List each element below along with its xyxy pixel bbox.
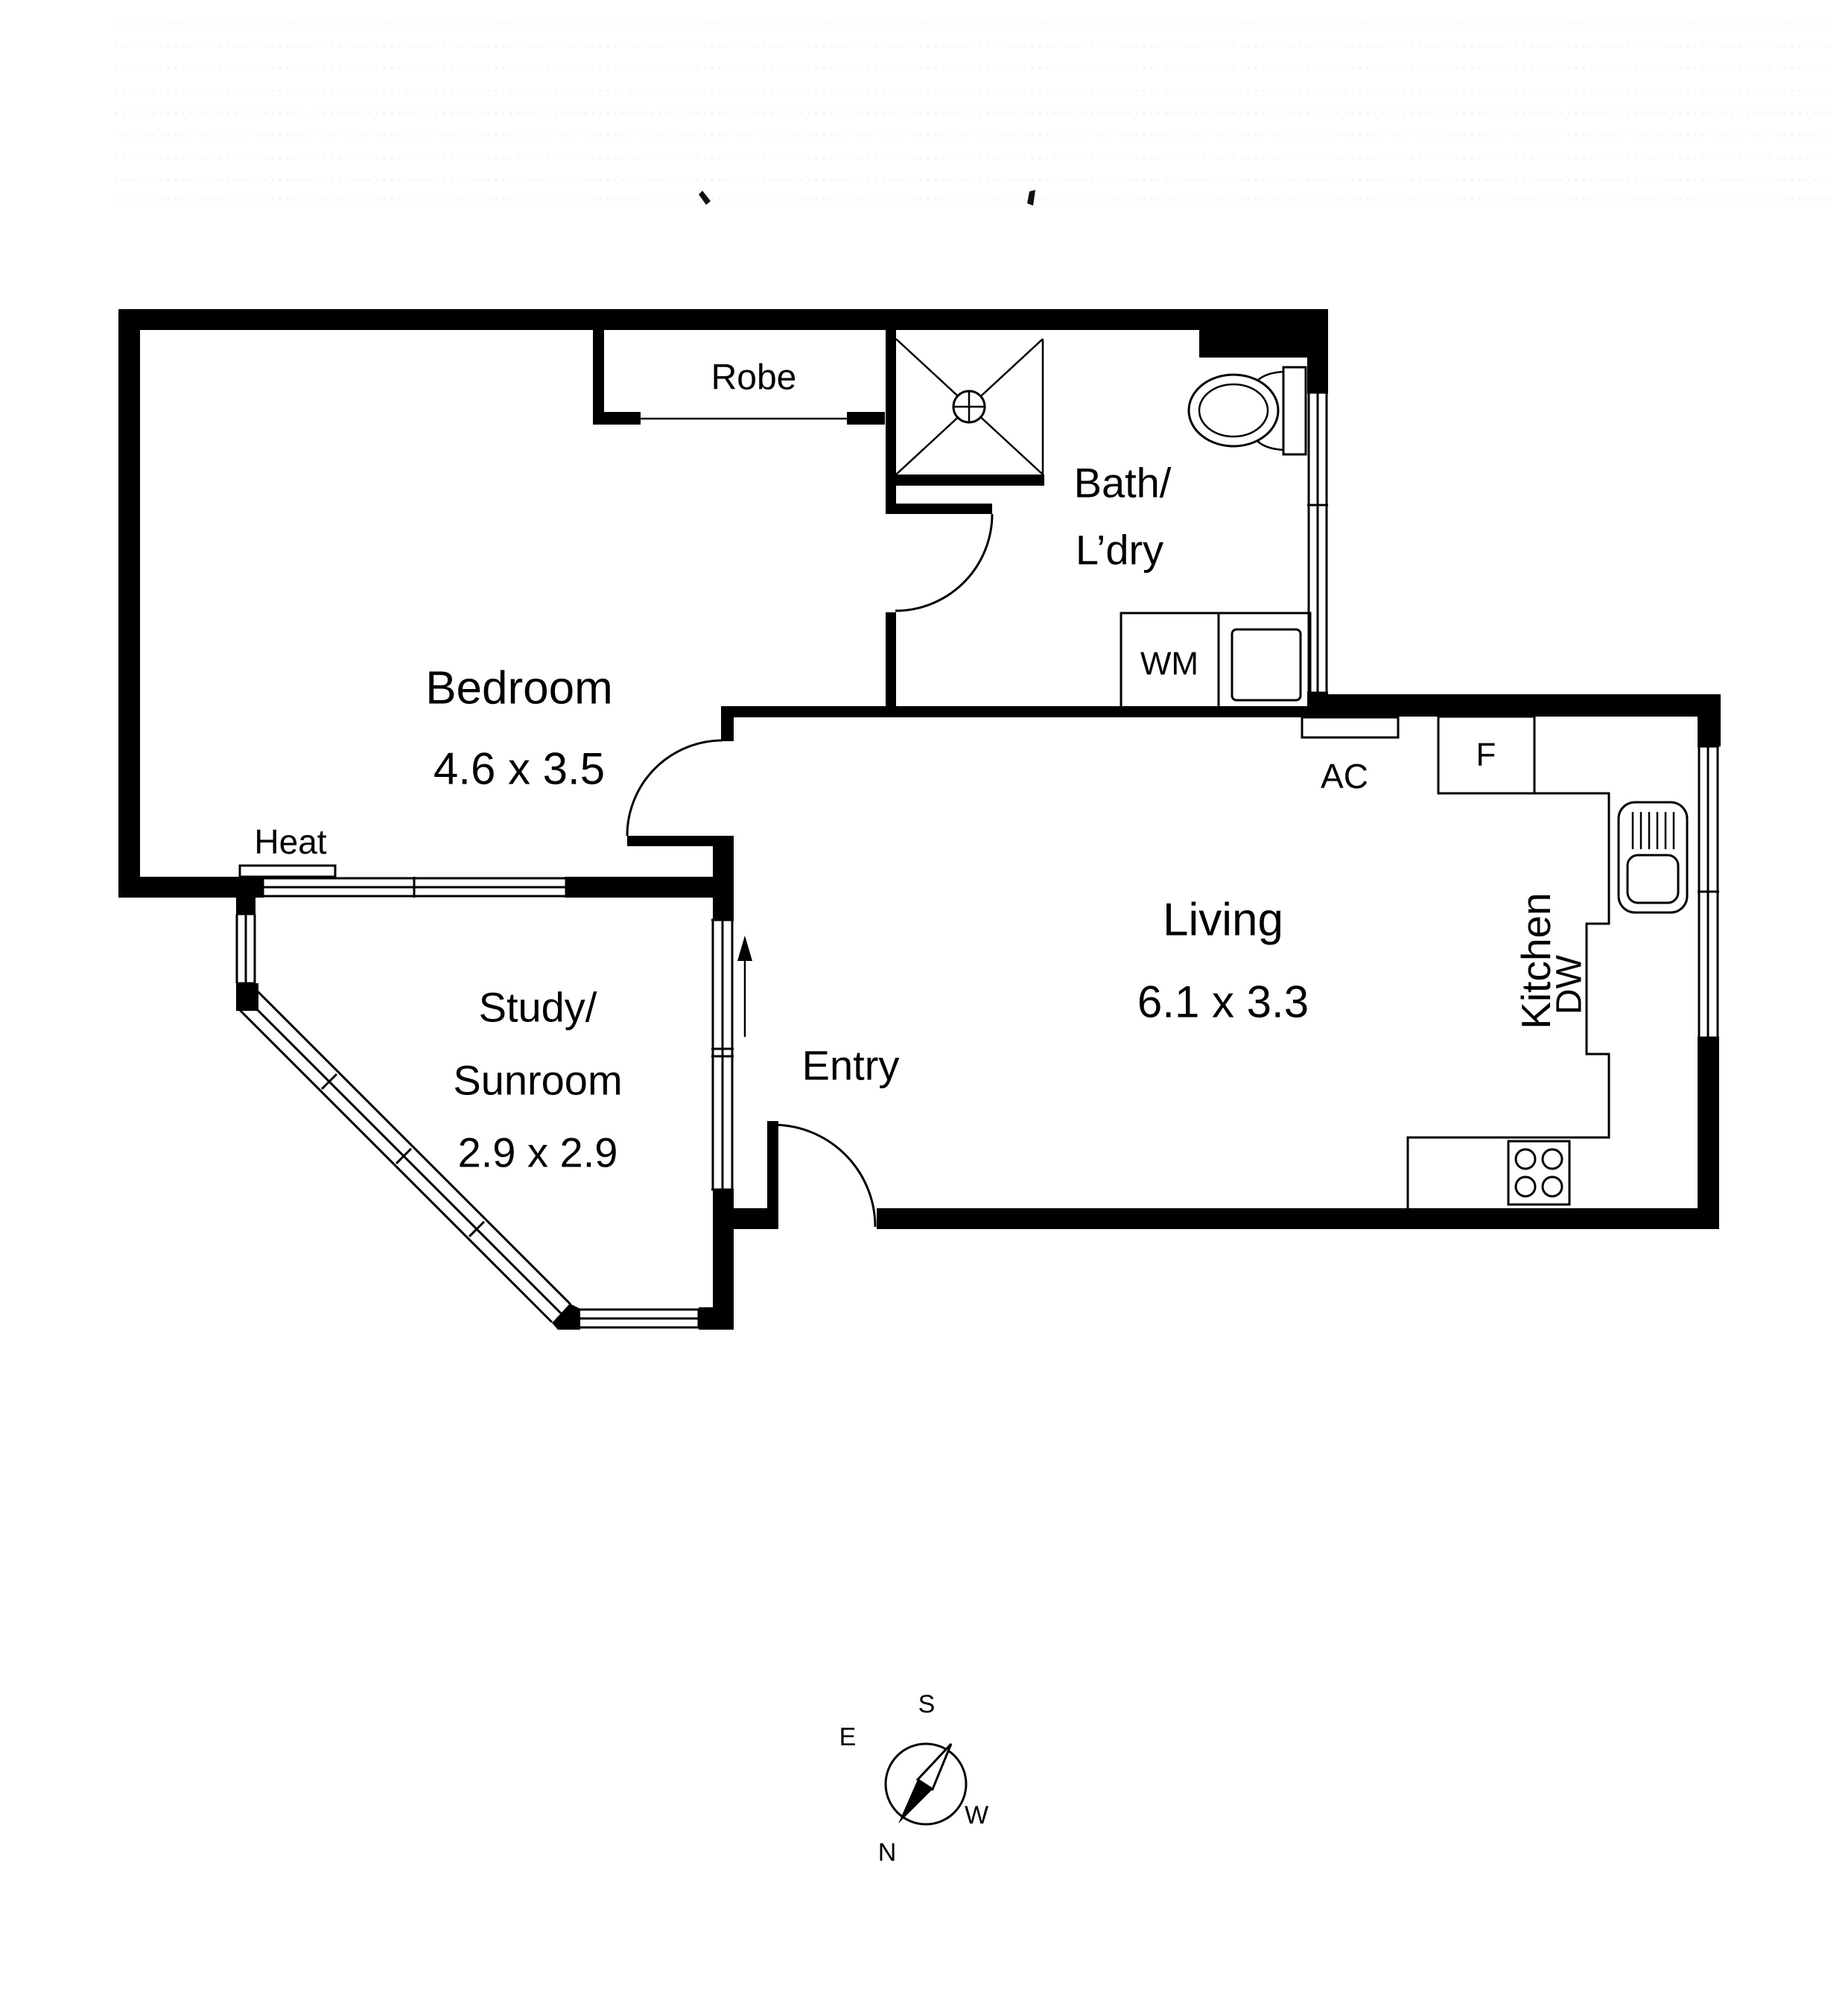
heater-box (240, 866, 335, 877)
robe-label: Robe (711, 358, 797, 398)
study-south-window (579, 1309, 699, 1328)
wall-bedroom-door-stub (627, 836, 734, 846)
laundry-tub-basin (1232, 629, 1301, 700)
wall-top-bath (1199, 309, 1328, 358)
entry-arrow-head (737, 936, 752, 961)
washing-machine-label: WM (1140, 646, 1198, 682)
stove-burner (1516, 1149, 1535, 1169)
wall-kitchen-right-lower (1698, 1038, 1719, 1229)
wall-bedroom-east-stub (713, 845, 734, 877)
compass: S E N W (839, 1690, 988, 1867)
bedroom-label: Bedroom (425, 663, 613, 714)
laundry-tub-icon (1219, 613, 1310, 708)
entry-door-leaf (767, 1121, 778, 1229)
wall-left (118, 309, 140, 898)
toilet-tank (1283, 367, 1306, 454)
wall-study-west-stub (236, 898, 255, 914)
ac-unit-box (1302, 717, 1398, 737)
living-dims: 6.1 x 3.3 (1137, 977, 1309, 1027)
compass-north-label: N (878, 1838, 897, 1867)
fridge-label: F (1476, 737, 1496, 773)
sink-icon (1619, 802, 1687, 913)
stove-burner (1543, 1149, 1562, 1169)
doors (627, 514, 992, 1227)
toilet-bowl (1189, 375, 1278, 446)
wall-bath-door-stub (895, 504, 992, 514)
wall-robe-stub-right (847, 412, 885, 425)
bath-label-line2: L’dry (1076, 527, 1163, 574)
shower-icon (896, 339, 1043, 475)
entry-door-arc (773, 1125, 875, 1227)
dishwasher-label: DW (1550, 954, 1590, 1015)
wall-robe-left (593, 330, 604, 425)
study-label-line1: Study/ (479, 984, 597, 1031)
stove-burner (1516, 1177, 1535, 1196)
entry-arrow-icon (737, 936, 752, 1037)
stove-outline (1508, 1141, 1569, 1205)
compass-south-label: S (918, 1690, 936, 1718)
walls (118, 309, 1721, 1330)
study-west-window (236, 914, 255, 983)
windows (236, 393, 1719, 1328)
compass-west-label: W (965, 1801, 988, 1829)
wall-study-corner-se (699, 1307, 734, 1330)
wall-bedroom-door-jamb (721, 706, 734, 741)
study-label-line2: Sunroom (453, 1057, 622, 1104)
wall-entry-window-cap-top (713, 877, 734, 920)
sink-basin (1628, 855, 1678, 903)
wall-top-main (118, 309, 1199, 330)
wall-kitchen-top (1307, 694, 1721, 717)
bath-door-arc (895, 514, 992, 611)
entry-label: Entry (802, 1042, 900, 1089)
watermark-remnant (115, 24, 1836, 206)
bedroom-south-window (263, 877, 566, 898)
wall-kitchen-right-corner (1698, 715, 1721, 746)
wall-bedroom-bottom-west (118, 877, 263, 898)
wall-living-bottom (877, 1208, 1719, 1229)
kitchen-east-window (1698, 746, 1719, 1038)
ac-label: AC (1321, 757, 1368, 796)
stove-icon (1508, 1141, 1569, 1205)
wall-bath-window-cap-top (1307, 358, 1328, 393)
heat-label: Heat (254, 822, 326, 861)
bedroom-door-arc (627, 740, 723, 836)
bath-label-line1: Bath/ (1074, 460, 1172, 507)
text-artifact-mark (1027, 190, 1035, 206)
floor-plan-svg: Bedroom 4.6 x 3.5 Robe Bath/ L’dry WM AC… (0, 0, 1848, 2009)
toilet-icon (1189, 367, 1306, 454)
wall-bath-west-lower (886, 612, 896, 717)
living-label: Living (1163, 895, 1283, 946)
wall-robe-stub-left (593, 412, 641, 425)
wall-bedroom-bottom-east (566, 877, 734, 898)
wall-bath-west-upper (886, 330, 896, 514)
compass-needle-south (918, 1744, 951, 1789)
bedroom-dims: 4.6 x 3.5 (434, 744, 605, 794)
compass-east-label: E (839, 1723, 857, 1751)
study-east-window (711, 920, 734, 1190)
floor-plan-page: Bedroom 4.6 x 3.5 Robe Bath/ L’dry WM AC… (0, 0, 1848, 2009)
study-dims: 2.9 x 2.9 (458, 1129, 618, 1176)
wall-shower-bottom (892, 475, 1044, 486)
stove-burner (1543, 1177, 1562, 1196)
text-artifact-mark (699, 191, 711, 205)
